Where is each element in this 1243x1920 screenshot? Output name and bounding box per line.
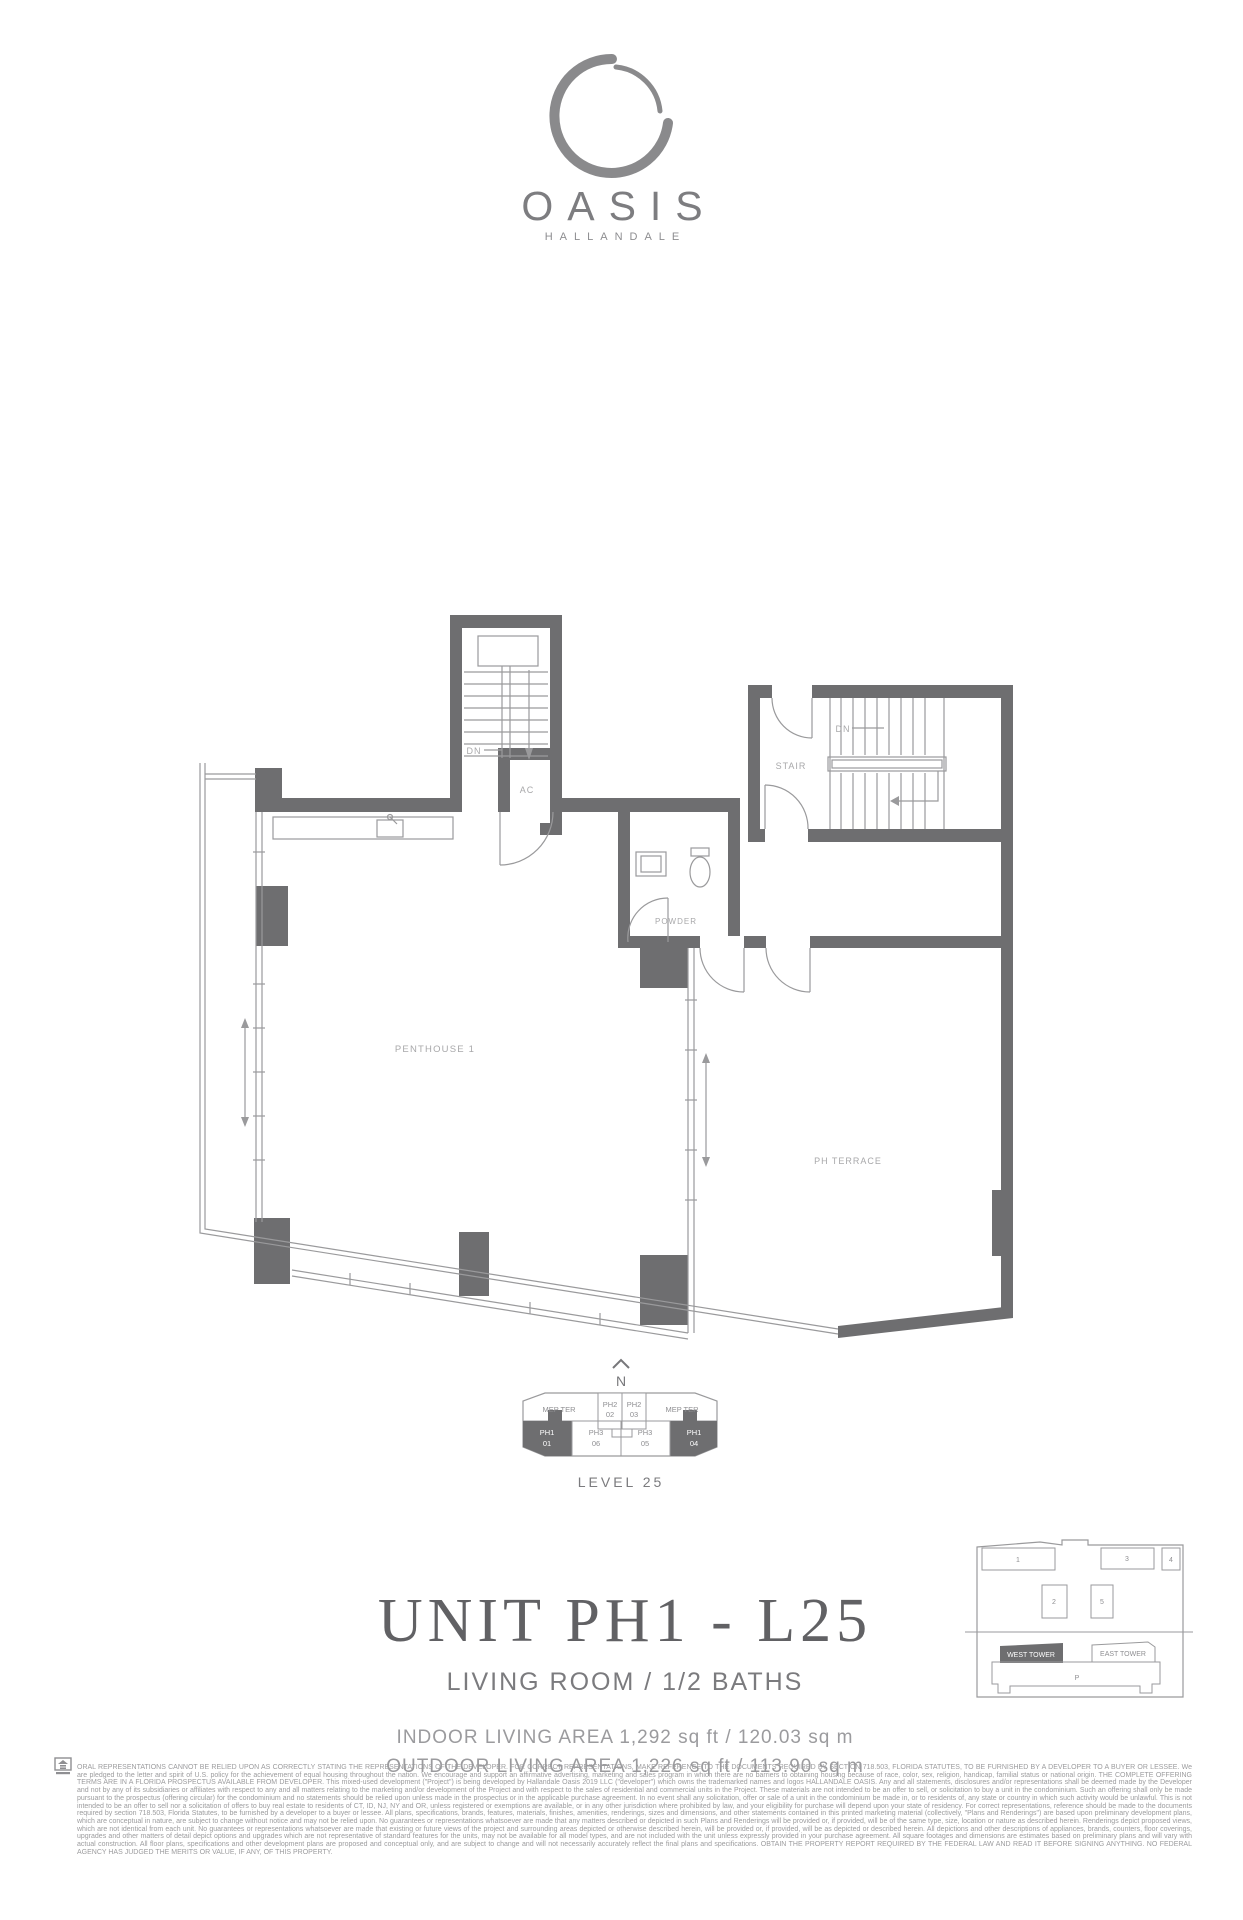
- keyplan-ph3-05-l2: 05: [641, 1439, 649, 1448]
- keyplan: N MEP TER MEP TER PH2 02 PH: [500, 1352, 745, 1464]
- keyplan-ph1-04-l2: 04: [690, 1439, 698, 1448]
- site-building-5: 5: [1100, 1599, 1104, 1606]
- compass-north-icon: N: [613, 1360, 629, 1389]
- keyplan-ph1-04-l1: PH1: [687, 1428, 702, 1437]
- keyplan-ph3-06-l1: PH3: [589, 1428, 604, 1437]
- label-terrace: PH TERRACE: [814, 1156, 882, 1166]
- plan-glazing-and-fixtures: [200, 636, 946, 1339]
- site-building-2: 2: [1052, 1599, 1056, 1606]
- unit-title: UNIT PH1 - L25: [378, 1586, 872, 1657]
- site-building-3: 3: [1125, 1556, 1129, 1563]
- indoor-living-area: INDOOR LIVING AREA 1,292 sq ft / 120.03 …: [397, 1727, 854, 1749]
- keyplan-ph2-02-l1: PH2: [603, 1400, 618, 1409]
- keyplan-mep-left: MEP TER: [542, 1405, 576, 1414]
- compass-label: N: [616, 1373, 626, 1389]
- label-stair: STAIR: [776, 761, 807, 771]
- site-parking-label: P: [1075, 1675, 1080, 1682]
- unit-subtitle: LIVING ROOM / 1/2 BATHS: [447, 1668, 804, 1697]
- site-building-4: 4: [1169, 1557, 1173, 1564]
- powder-fixtures: [636, 848, 710, 887]
- site-buildings: [982, 1548, 1180, 1618]
- site-west-tower-label: WEST TOWER: [1007, 1652, 1055, 1659]
- equal-housing-icon: [54, 1757, 72, 1775]
- site-east-tower-label: EAST TOWER: [1100, 1651, 1146, 1658]
- site-building-labels: 1 2 3 4 5: [1016, 1556, 1173, 1606]
- label-ac: AC: [520, 785, 535, 795]
- plan-walls: [254, 615, 1013, 1338]
- label-dn-right: DN: [836, 724, 851, 734]
- keyplan-ph1-01-l1: PH1: [540, 1428, 555, 1437]
- keyplan-ph3-06-l2: 06: [592, 1439, 600, 1448]
- keyplan-ph1-01-l2: 01: [543, 1439, 551, 1448]
- keyplan-ph2-02-l2: 02: [606, 1410, 614, 1419]
- legal-disclaimer: ORAL REPRESENTATIONS CANNOT BE RELIED UP…: [77, 1764, 1192, 1856]
- keyplan-ph2-03-l2: 03: [630, 1410, 638, 1419]
- site-plan: 1 2 3 4 5 WEST TOWER EAST TOWER P: [960, 1530, 1205, 1705]
- brand-name: OASIS: [507, 183, 716, 230]
- floor-plan: DN AC STAIR DN POWDER PENTHOUSE 1 PH TER…: [140, 560, 1060, 1360]
- oasis-logo-icon: [542, 45, 682, 190]
- keyplan-ph2-03-l1: PH2: [627, 1400, 642, 1409]
- brand-location: HALLANDALE: [538, 231, 687, 243]
- level-label: LEVEL 25: [578, 1474, 665, 1490]
- label-dn-top: DN: [467, 746, 482, 756]
- brochure-page: OASIS HALLANDALE: [0, 0, 1243, 1920]
- site-building-1: 1: [1016, 1557, 1020, 1564]
- keyplan-ph3-cells: [572, 1421, 670, 1456]
- keyplan-mep-right: MEP TER: [665, 1405, 699, 1414]
- keyplan-ph3-05-l1: PH3: [638, 1428, 653, 1437]
- label-powder: POWDER: [655, 917, 697, 926]
- label-penthouse: PENTHOUSE 1: [395, 1044, 475, 1055]
- site-boundary: [977, 1540, 1183, 1697]
